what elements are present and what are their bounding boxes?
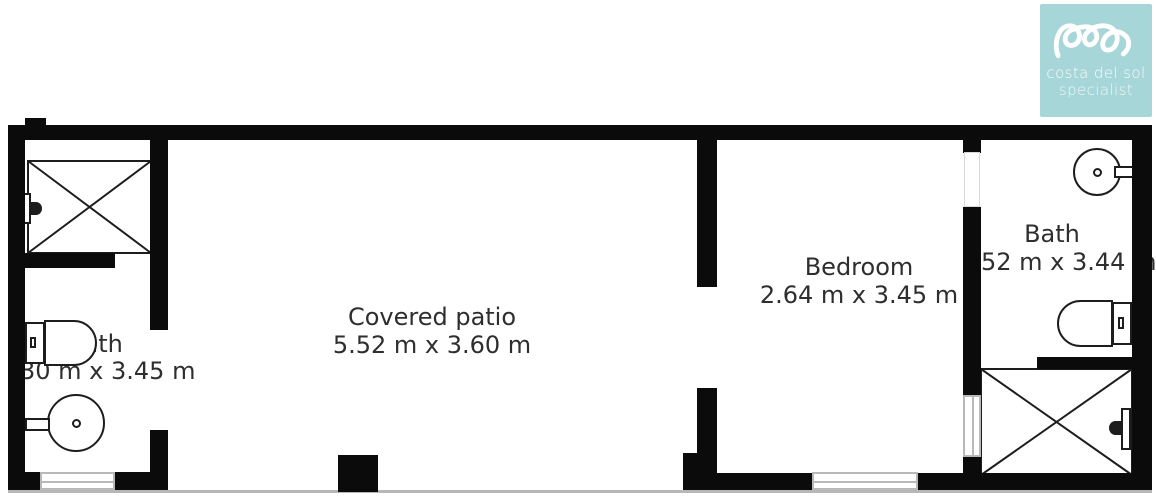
floorplan-canvas: costa del sol specialist Bath 30 m x 3.4… [0,0,1156,496]
toilet-flush-button [30,337,36,348]
wall-bedroom-bath-mid [963,207,981,395]
logo-text-line2: specialist [1059,81,1133,99]
toilet-bowl [44,320,97,366]
window-pane-line [42,481,113,483]
wall-pier-foot [683,453,717,490]
logo-text-line1: costa del sol [1046,64,1145,82]
window-bath-right [963,395,981,457]
squiggle-loops-icon [1052,16,1140,62]
wall-bedroom-bath-lower [963,457,981,490]
sink-drain [72,419,81,428]
wall-patio-bedroom-upper [697,140,717,287]
room-label-patio: Covered patio [282,304,582,330]
wall-bathleft-patio-upper [150,140,168,330]
shower-head-knob [1109,421,1122,435]
room-dims-bath-right: 52 m x 3.44 m [981,249,1156,275]
wall-bottom-right [700,473,1152,490]
plan-bottom-edge [8,490,1152,493]
shower-head-icon [1121,408,1131,450]
room-label-bath-right: Bath [977,221,1127,247]
sink-tap [25,418,50,431]
room-dims-patio: 5.52 m x 3.60 m [282,332,582,358]
wall-shower-partition-left [25,253,115,268]
window-bedroom [812,472,918,490]
wall-right [1132,125,1152,490]
agency-logo: costa del sol specialist [1040,4,1152,117]
patio-pillar [338,455,378,492]
window-pane-line [814,481,916,483]
sink-drain [1093,168,1102,177]
window-bath-left [40,472,115,490]
toilet-flush-button [1118,317,1124,329]
wall-left [8,125,25,490]
shower-icon [27,160,152,254]
window-pane-line [972,397,974,455]
sink-icon [47,394,105,452]
wall-bathleft-patio-lower [150,430,168,490]
wall-shower-partition-right [1037,357,1132,369]
opening-bedroom-bath [964,152,980,207]
toilet-bowl [1057,300,1113,347]
shower-head-knob [30,202,42,215]
wall-top [8,125,1152,140]
